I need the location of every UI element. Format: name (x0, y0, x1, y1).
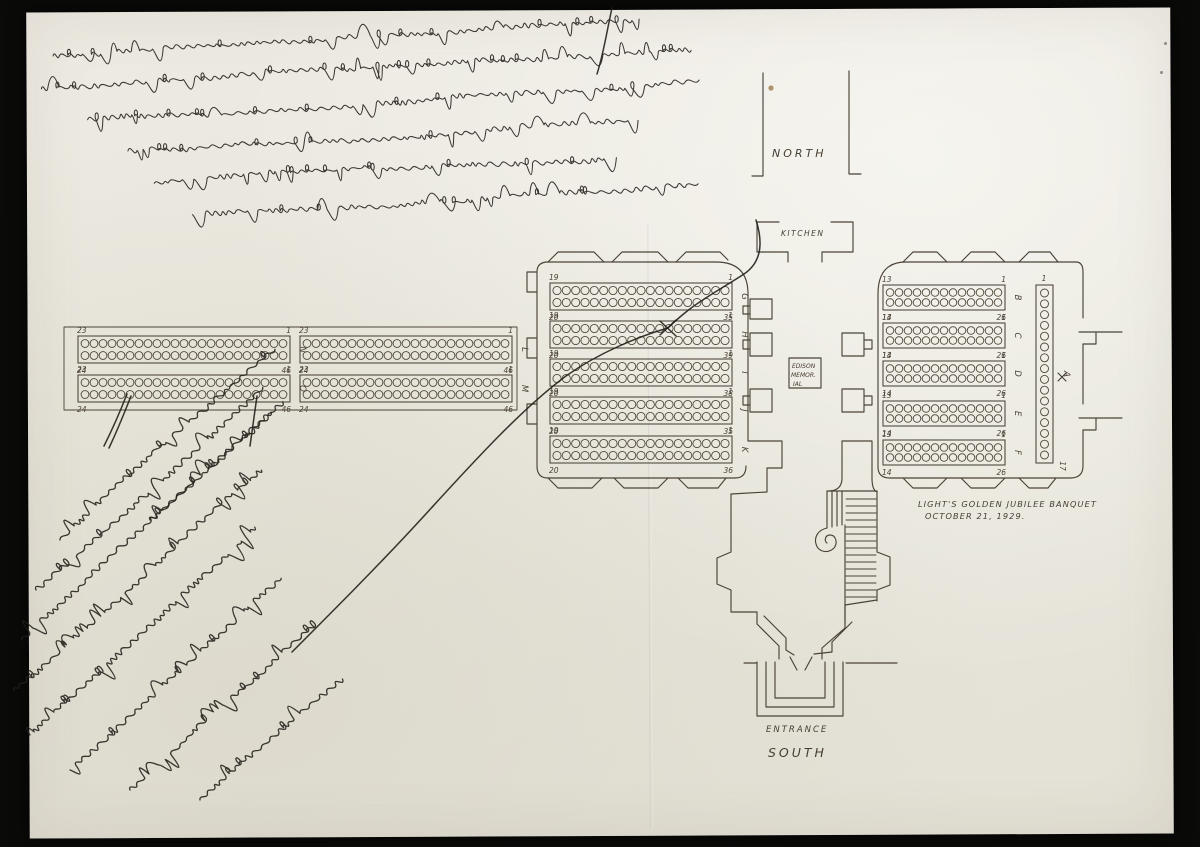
seat-circle (940, 337, 948, 345)
seat-circle (721, 451, 729, 459)
seat-circle (501, 352, 509, 360)
seat-circle (904, 289, 912, 297)
banquet-table-K: 1912036K (549, 426, 749, 475)
table-seat-number: 20 (549, 466, 559, 475)
seat-circle (447, 379, 455, 387)
seat-circle (674, 286, 682, 294)
seat-circle (693, 324, 701, 332)
seat-circle (674, 362, 682, 370)
seat-circle (562, 336, 570, 344)
table-letter-label: F (1012, 450, 1022, 455)
seat-circle (261, 379, 269, 387)
seat-circle (216, 379, 224, 387)
table-letter-label: C (1012, 333, 1022, 339)
seat-circle (702, 451, 710, 459)
seat-circle (895, 289, 903, 297)
seat-circle (162, 340, 170, 348)
seat-circle (628, 451, 636, 459)
seat-circle (940, 327, 948, 335)
seat-circle (572, 324, 580, 332)
seat-circle (1041, 397, 1049, 405)
seat-circle (99, 379, 107, 387)
south-lobby-east-chute (814, 605, 852, 659)
seat-circle (572, 412, 580, 420)
seat-circle (562, 439, 570, 447)
seat-circle (402, 379, 410, 387)
seat-circle (994, 327, 1002, 335)
seat-circle (693, 336, 701, 344)
seat-circle (712, 336, 720, 344)
seat-circle (198, 340, 206, 348)
seat-circle (312, 352, 320, 360)
seat-circle (590, 439, 598, 447)
stair-spiral-newel (815, 528, 836, 551)
seat-circle (904, 365, 912, 373)
seat-circle (243, 379, 251, 387)
seat-circle (976, 454, 984, 462)
seat-circle (922, 454, 930, 462)
seat-circle (684, 374, 692, 382)
seat-circle (429, 352, 437, 360)
seat-circle (684, 286, 692, 294)
seat-circle (693, 374, 701, 382)
seat-circle (886, 375, 894, 383)
seat-circle (590, 324, 598, 332)
seat-circle (581, 400, 589, 408)
seat-circle (656, 439, 664, 447)
seat-circle (976, 337, 984, 345)
seat-circle (465, 391, 473, 399)
seat-circle (646, 286, 654, 294)
entrance-label: ENTRANCE (766, 725, 828, 735)
seat-circle (702, 286, 710, 294)
seat-circle (976, 299, 984, 307)
seat-circle (628, 362, 636, 370)
seat-circle (456, 379, 464, 387)
seat-circle (279, 352, 287, 360)
seat-circle (994, 375, 1002, 383)
seat-circle (656, 336, 664, 344)
seat-circle (501, 340, 509, 348)
seat-circle (581, 439, 589, 447)
table-seat-number: 1 (728, 426, 733, 435)
seat-circle (940, 375, 948, 383)
handwritten-note-top-inverted (38, 1, 707, 240)
seat-circle (994, 289, 1002, 297)
table-letter-label: B (1012, 295, 1022, 301)
seat-circle (562, 362, 570, 370)
banquet-table-G: 1912035G (549, 273, 749, 322)
table-seat-number: 13 (882, 313, 892, 322)
seat-circle (384, 352, 392, 360)
seat-circle (590, 412, 598, 420)
seat-circle (665, 451, 673, 459)
table-seat-number: 1 (728, 387, 733, 396)
seat-circle (420, 352, 428, 360)
table-seat-number: 24 (299, 405, 309, 414)
seat-circle (357, 340, 365, 348)
seat-circle (958, 405, 966, 413)
seat-circle (684, 451, 692, 459)
seat-circle (702, 439, 710, 447)
seat-circle (375, 391, 383, 399)
table-seat-number: 1 (728, 311, 733, 320)
handwriting-line (20, 519, 267, 746)
caption-date: OCTOBER 21, 1929. (925, 511, 1025, 521)
seat-circle (949, 405, 957, 413)
seat-circle (609, 324, 617, 332)
seat-circle (637, 400, 645, 408)
seat-circle (684, 439, 692, 447)
seat-circle (1041, 300, 1049, 308)
seat-circle (646, 324, 654, 332)
table-seat-number: 1 (286, 365, 291, 374)
table-letter-label: N (297, 346, 307, 353)
seat-circle (553, 412, 561, 420)
seat-circle (886, 327, 894, 335)
seat-circle (243, 391, 251, 399)
handwriting-line (127, 109, 639, 170)
seat-circle (357, 391, 365, 399)
seat-circle (279, 340, 287, 348)
seat-circle (646, 412, 654, 420)
seat-circle (931, 405, 939, 413)
seat-circle (447, 352, 455, 360)
seat-circle (402, 352, 410, 360)
seat-circle (674, 336, 682, 344)
seat-circle (456, 340, 464, 348)
seat-circle (958, 375, 966, 383)
seat-circle (904, 327, 912, 335)
seat-circle (721, 412, 729, 420)
seat-circle (492, 340, 500, 348)
seat-circle (225, 340, 233, 348)
floor-plan-walls (64, 71, 1122, 716)
banquet-table-A: 117A (1036, 274, 1071, 471)
seat-circle (913, 289, 921, 297)
seat-circle (985, 299, 993, 307)
seat-circle (949, 337, 957, 345)
seat-circle (931, 289, 939, 297)
seat-circle (940, 415, 948, 423)
seat-circle (600, 336, 608, 344)
seat-circle (339, 352, 347, 360)
seat-circle (976, 405, 984, 413)
seat-circle (886, 289, 894, 297)
seat-circle (303, 352, 311, 360)
seat-circle (153, 391, 161, 399)
memorial-label-line2: MEMOR. (791, 372, 816, 379)
seat-circle (126, 340, 134, 348)
table-letter-label: L (519, 347, 529, 352)
seat-circle (171, 379, 179, 387)
seat-circle (321, 391, 329, 399)
seat-circle (609, 298, 617, 306)
seat-circle (886, 415, 894, 423)
seat-circle (590, 451, 598, 459)
south-label: SOUTH (768, 745, 827, 760)
seat-circle (913, 375, 921, 383)
seat-circle (429, 340, 437, 348)
seat-circle (665, 298, 673, 306)
seat-circle (330, 379, 338, 387)
seat-circle (207, 379, 215, 387)
seat-circle (702, 412, 710, 420)
seat-circle (895, 337, 903, 345)
seat-circle (674, 298, 682, 306)
seat-circle (348, 379, 356, 387)
seat-circle (665, 374, 673, 382)
handwritten-note-bottom-diagonal (7, 338, 344, 806)
seat-circle (1041, 451, 1049, 459)
seat-circle (474, 352, 482, 360)
seat-circle (1041, 419, 1049, 427)
seat-circle (261, 340, 269, 348)
seat-circle (618, 286, 626, 294)
seat-circle (590, 400, 598, 408)
seat-circle (590, 336, 598, 344)
banquet-table-O: 2312446O (77, 365, 307, 414)
seat-circle (330, 340, 338, 348)
seat-circle (886, 365, 894, 373)
seat-circle (581, 286, 589, 294)
seat-circle (693, 439, 701, 447)
seat-circle (135, 379, 143, 387)
seat-circle (967, 299, 975, 307)
seat-circle (994, 454, 1002, 462)
banquet-table-M: 2312446M (299, 365, 529, 414)
seat-circle (81, 352, 89, 360)
seat-circle (656, 298, 664, 306)
seat-circle (270, 340, 278, 348)
seat-circle (366, 379, 374, 387)
seat-circle (618, 362, 626, 370)
banquet-table-N: 2312446N (77, 326, 307, 375)
seat-circle (931, 337, 939, 345)
seat-circle (572, 400, 580, 408)
seat-circle (216, 352, 224, 360)
table-seat-number: 46 (281, 405, 291, 414)
seat-circle (384, 379, 392, 387)
seat-circle (312, 391, 320, 399)
seat-circle (234, 391, 242, 399)
seat-circle (1041, 321, 1049, 329)
seat-circle (99, 391, 107, 399)
seat-circle (99, 340, 107, 348)
seat-circle (393, 391, 401, 399)
seat-circle (674, 374, 682, 382)
table-letter-label: G (739, 293, 749, 300)
seat-circle (81, 391, 89, 399)
seat-circle (712, 400, 720, 408)
seat-circle (656, 286, 664, 294)
seat-circle (618, 439, 626, 447)
grand-staircase (815, 491, 890, 623)
seat-circle (375, 340, 383, 348)
seat-circle (994, 405, 1002, 413)
seat-circle (153, 352, 161, 360)
seat-circle (628, 374, 636, 382)
seat-circle (609, 400, 617, 408)
seat-circle (922, 327, 930, 335)
seat-circle (465, 379, 473, 387)
seat-circle (985, 405, 993, 413)
seat-circle (886, 405, 894, 413)
seat-circle (721, 400, 729, 408)
seat-circle (189, 391, 197, 399)
seat-circle (684, 336, 692, 344)
seat-circle (665, 412, 673, 420)
seat-circle (949, 289, 957, 297)
ink-flourish (597, 8, 612, 74)
seat-circle (330, 391, 338, 399)
seat-circle (665, 362, 673, 370)
seat-circle (339, 391, 347, 399)
table-seat-number: 13 (882, 391, 892, 400)
seat-circle (895, 454, 903, 462)
seat-circle (976, 375, 984, 383)
seat-circle (171, 352, 179, 360)
seat-circle (976, 327, 984, 335)
seat-circle (618, 451, 626, 459)
seat-circle (126, 352, 134, 360)
seat-circle (366, 352, 374, 360)
seat-circle (656, 451, 664, 459)
seat-circle (438, 340, 446, 348)
seat-circle (438, 352, 446, 360)
seat-circle (1041, 429, 1049, 437)
seat-circle (590, 374, 598, 382)
seat-circle (913, 327, 921, 335)
seat-circle (674, 400, 682, 408)
memorial-label-line3: IAL (793, 381, 802, 388)
seat-circle (1041, 386, 1049, 394)
seat-circle (922, 365, 930, 373)
seat-circle (931, 415, 939, 423)
seat-circle (144, 391, 152, 399)
seat-circle (234, 352, 242, 360)
seat-circle (967, 289, 975, 297)
seat-circle (985, 375, 993, 383)
seat-circle (581, 298, 589, 306)
table-seat-number: 1 (728, 349, 733, 358)
seat-circle (90, 340, 98, 348)
seat-circle (994, 299, 1002, 307)
seat-circle (492, 352, 500, 360)
seat-circle (234, 340, 242, 348)
kitchen-label: KITCHEN (781, 229, 824, 238)
seat-circle (562, 324, 570, 332)
seat-circle (693, 412, 701, 420)
seat-circle (99, 352, 107, 360)
seat-circle (618, 374, 626, 382)
seat-circle (693, 451, 701, 459)
seat-circle (958, 327, 966, 335)
table-letter-label: M (519, 385, 529, 393)
seat-circle (243, 352, 251, 360)
scanned-document: NORTH KITCHEN EDISON MEMOR. IAL ENTRANCE… (0, 0, 1200, 847)
seat-circle (339, 340, 347, 348)
seat-circle (600, 374, 608, 382)
seat-circle (312, 340, 320, 348)
seat-circle (492, 379, 500, 387)
seat-circle (674, 324, 682, 332)
seat-circle (922, 375, 930, 383)
north-corridor-walls (752, 71, 861, 176)
seat-circle (886, 454, 894, 462)
seat-circle (637, 362, 645, 370)
seat-circle (913, 454, 921, 462)
table-seat-number: 17 (1058, 461, 1067, 471)
seat-circle (590, 298, 598, 306)
seat-circle (958, 444, 966, 452)
seat-circle (886, 337, 894, 345)
kitchen-walls (757, 222, 853, 262)
seat-circle (609, 286, 617, 294)
seat-circle (483, 352, 491, 360)
seat-circle (1041, 289, 1049, 297)
seat-circle (402, 391, 410, 399)
seat-circle (904, 415, 912, 423)
seat-circle (411, 340, 419, 348)
seat-circle (375, 379, 383, 387)
seat-circle (252, 340, 260, 348)
seat-circle (366, 340, 374, 348)
seat-circle (646, 336, 654, 344)
seat-circle (600, 324, 608, 332)
seat-circle (684, 412, 692, 420)
seat-circle (665, 286, 673, 294)
seat-circle (411, 391, 419, 399)
seat-circle (967, 327, 975, 335)
seat-circle (913, 337, 921, 345)
seat-circle (976, 365, 984, 373)
seat-circle (483, 340, 491, 348)
seat-circle (967, 405, 975, 413)
banquet-table-I: 1912038I (549, 349, 749, 398)
seat-circle (198, 391, 206, 399)
seat-circle (321, 340, 329, 348)
seat-circle (572, 336, 580, 344)
seat-circle (366, 391, 374, 399)
seat-circle (665, 439, 673, 447)
seat-circle (618, 324, 626, 332)
table-seat-number: 19 (549, 273, 559, 282)
table-seat-number: 36 (723, 466, 733, 475)
seat-circle (637, 412, 645, 420)
seat-circle (1041, 408, 1049, 416)
east-hall-bays (903, 252, 1058, 488)
seat-circle (922, 405, 930, 413)
seat-circle (171, 391, 179, 399)
seat-circle (985, 454, 993, 462)
seat-circle (321, 352, 329, 360)
seat-circle (189, 352, 197, 360)
seat-circle (180, 379, 188, 387)
seat-circle (261, 391, 269, 399)
seat-circle (628, 298, 636, 306)
seat-circle (646, 298, 654, 306)
seat-circle (180, 391, 188, 399)
seat-circle (581, 324, 589, 332)
seat-circle (225, 391, 233, 399)
seat-circle (702, 374, 710, 382)
seat-circle (721, 374, 729, 382)
table-letter-label: D (1012, 370, 1022, 377)
table-seat-number: 24 (77, 405, 87, 414)
seat-circle (144, 352, 152, 360)
memorial-label-line1: EDISON (792, 363, 816, 370)
